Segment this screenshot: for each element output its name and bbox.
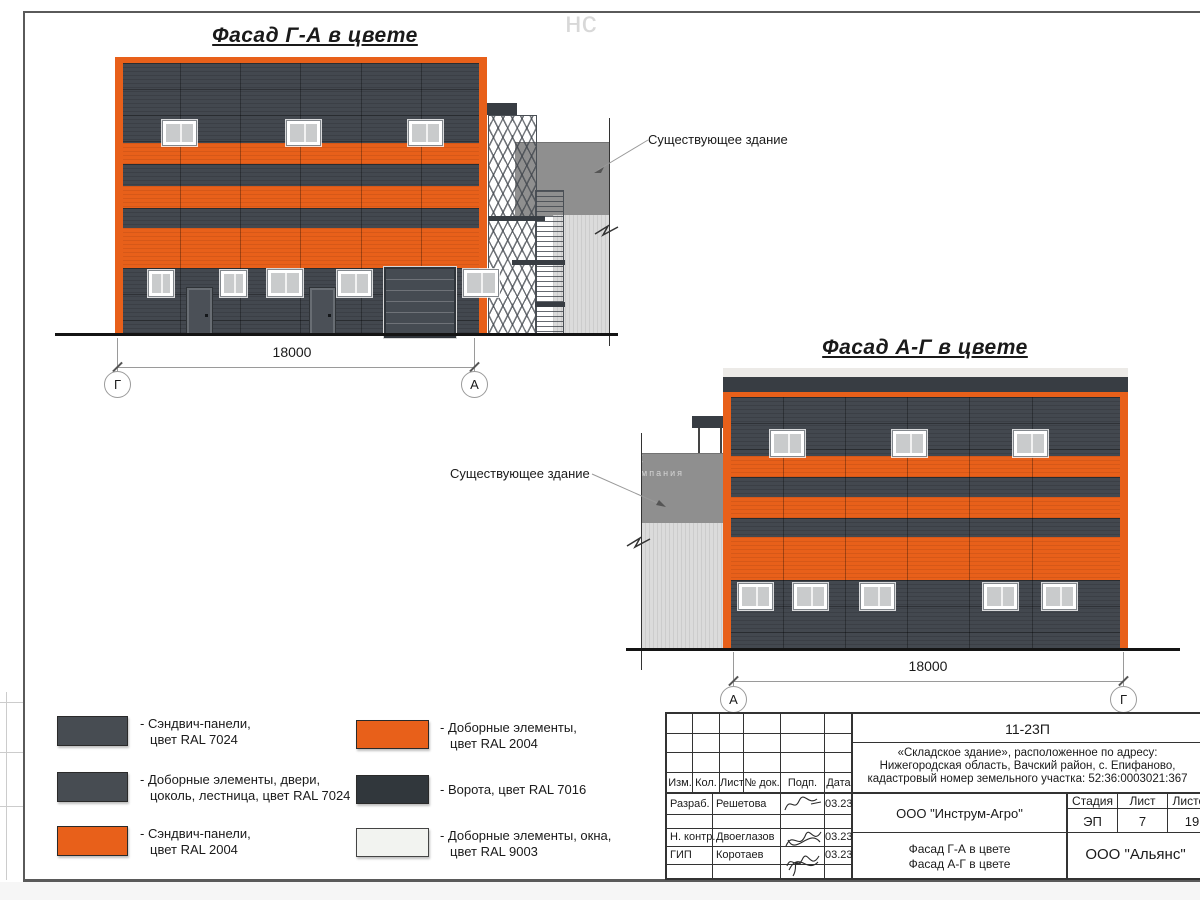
facade-corner-trim — [115, 57, 123, 334]
sandwich-panel-band — [123, 208, 479, 228]
leader-line — [588, 468, 670, 512]
tb-col-kol: Кол. — [693, 777, 719, 789]
tb-stage: ЭП — [1068, 814, 1117, 829]
axis-marker: Г — [1110, 686, 1137, 713]
margin-tick — [0, 806, 23, 807]
tb-line — [667, 752, 852, 753]
tb-line — [1068, 808, 1200, 809]
tb-role: ГИП — [670, 849, 692, 861]
tb-col-doc: № док. — [744, 777, 780, 789]
tb-line — [667, 828, 852, 829]
sandwich-panel-band — [123, 143, 479, 164]
dimension-line — [117, 367, 474, 368]
sandwich-panel-band — [123, 228, 479, 268]
frame-top-line — [24, 11, 1200, 13]
tb-line — [667, 772, 852, 773]
tb-name: Решетова — [716, 798, 766, 810]
tb-line — [667, 846, 852, 847]
axis-marker: А — [461, 371, 488, 398]
legend-swatch — [57, 826, 128, 856]
window — [793, 583, 828, 610]
tb-doc-number: 11-23П — [852, 721, 1200, 737]
legend-label: - Доборные элементы, окна,цвет RAL 9003 — [440, 828, 611, 860]
stair-roof — [486, 103, 517, 115]
sandwich-panel-band — [731, 537, 1120, 580]
sandwich-panel-band — [731, 477, 1120, 497]
window — [983, 583, 1018, 610]
tb-col-list: Лист — [720, 777, 743, 789]
roof-edge-strip — [723, 368, 1128, 377]
dimension-line — [733, 681, 1123, 682]
facade-corner-trim — [723, 392, 731, 651]
tb-name: Коротаев — [716, 849, 764, 861]
tb-col-podp: Подп. — [781, 777, 824, 789]
window — [1013, 430, 1048, 457]
facade2-title: Фасад А-Г в цвете — [760, 336, 1090, 360]
existing-building-label: Существующее здание — [648, 132, 788, 147]
door — [309, 287, 336, 336]
tb-role: Н. контр. — [670, 831, 715, 843]
legend-label: - Сэндвич-панели,цвет RAL 2004 — [140, 826, 251, 858]
panel-joint-line — [845, 397, 846, 651]
legend-label: - Ворота, цвет RAL 7016 — [440, 782, 586, 798]
tb-date: 03.23 — [825, 849, 853, 861]
ground-line — [626, 648, 1180, 651]
door — [186, 287, 213, 336]
frame-left-line — [23, 11, 25, 881]
panel-joint-line — [969, 397, 970, 651]
tb-developer: ООО "Инструм-Агро" — [853, 806, 1066, 821]
legend-swatch — [57, 772, 128, 802]
tb-line — [667, 864, 852, 865]
rooftop-structure-leg — [698, 428, 700, 453]
sandwich-panel-band — [731, 518, 1120, 537]
window — [770, 430, 805, 457]
tb-line — [852, 832, 1200, 833]
facade2-building — [723, 368, 1128, 651]
tb-sheets: 19 — [1168, 814, 1200, 829]
signature — [781, 826, 824, 878]
tb-name: Двоеглазов — [716, 831, 774, 843]
window — [267, 269, 303, 297]
facade-corner-trim — [1120, 392, 1128, 651]
window — [148, 270, 174, 297]
sandwich-panel-band — [731, 497, 1120, 518]
window — [463, 269, 499, 297]
tb-line — [667, 733, 852, 734]
window — [738, 583, 773, 610]
drawing-sheet: нс Фасад Г-А в цвете — [0, 0, 1200, 900]
window — [860, 583, 895, 610]
tb-sheets-label: Листов — [1168, 794, 1200, 808]
legend-swatch — [356, 828, 429, 857]
window — [286, 120, 321, 146]
legend-swatch — [356, 720, 429, 749]
window — [1042, 583, 1077, 610]
window — [337, 270, 372, 297]
legend-label: - Доборные элементы, двери,цоколь, лестн… — [140, 772, 350, 804]
title-block: Изм. Кол. Лист № док. Подп. Дата Разраб.… — [665, 712, 1200, 880]
signature — [781, 794, 824, 814]
dimension-value: 18000 — [878, 658, 978, 674]
stair-tower — [488, 115, 537, 334]
sandwich-panel-band — [731, 456, 1120, 477]
tb-sheet-name-line2: Фасад А-Г в цвете — [853, 857, 1066, 871]
sandwich-panel-band — [123, 164, 479, 186]
sandwich-panel-band — [123, 186, 479, 208]
tb-sheet: 7 — [1118, 814, 1167, 829]
gate — [384, 267, 456, 338]
margin-tick — [0, 752, 23, 753]
margin-tick — [0, 702, 23, 703]
tb-project-line3: кадастровый номер земельного участка: 52… — [852, 773, 1200, 785]
legend-label: - Сэндвич-панели,цвет RAL 7024 — [140, 716, 251, 748]
axis-marker: А — [720, 686, 747, 713]
existing-building-label: Существующее здание — [450, 466, 590, 481]
parapet-band — [723, 377, 1128, 392]
tb-contractor: ООО "Альянс" — [1068, 846, 1200, 863]
leader-line — [590, 136, 652, 178]
tb-role: Разраб. — [670, 798, 710, 810]
below-frame-strip — [0, 882, 1200, 900]
facade1-title: Фасад Г-А в цвете — [150, 24, 480, 48]
rooftop-structure-leg — [720, 428, 722, 453]
break-symbol — [626, 534, 658, 552]
tb-sheet-label: Лист — [1118, 794, 1167, 808]
stair-platform — [488, 216, 545, 221]
stair-platform — [512, 260, 565, 265]
tb-date: 03.23 — [825, 831, 853, 843]
break-symbol — [594, 222, 626, 240]
axis-marker: Г — [104, 371, 131, 398]
stair-platform — [535, 302, 565, 307]
panel-joint-line — [180, 63, 181, 334]
tb-col-data: Дата — [825, 777, 852, 789]
tb-project-line1: «Складское здание», расположенное по адр… — [852, 747, 1200, 759]
tb-stage-label: Стадия — [1068, 794, 1117, 808]
tb-sheet-name-line1: Фасад Г-А в цвете — [853, 842, 1066, 856]
tb-line — [852, 742, 1200, 743]
legend-label: - Доборные элементы,цвет RAL 2004 — [440, 720, 577, 752]
legend-swatch — [356, 775, 429, 804]
window — [162, 120, 197, 146]
margin-line — [6, 692, 7, 880]
tb-col-izm: Изм. — [668, 777, 692, 789]
window — [408, 120, 443, 146]
tb-project-line2: Нижегородская область, Вачский район, с.… — [852, 760, 1200, 772]
window — [892, 430, 927, 457]
ground-line — [55, 333, 618, 336]
tb-date: 03.23 — [825, 798, 853, 810]
dimension-value: 18000 — [242, 344, 342, 360]
legend-swatch — [57, 716, 128, 746]
watermark-fragment: нс — [565, 6, 597, 40]
window — [220, 270, 247, 297]
tb-line — [667, 814, 852, 815]
facade1-building — [115, 57, 487, 334]
